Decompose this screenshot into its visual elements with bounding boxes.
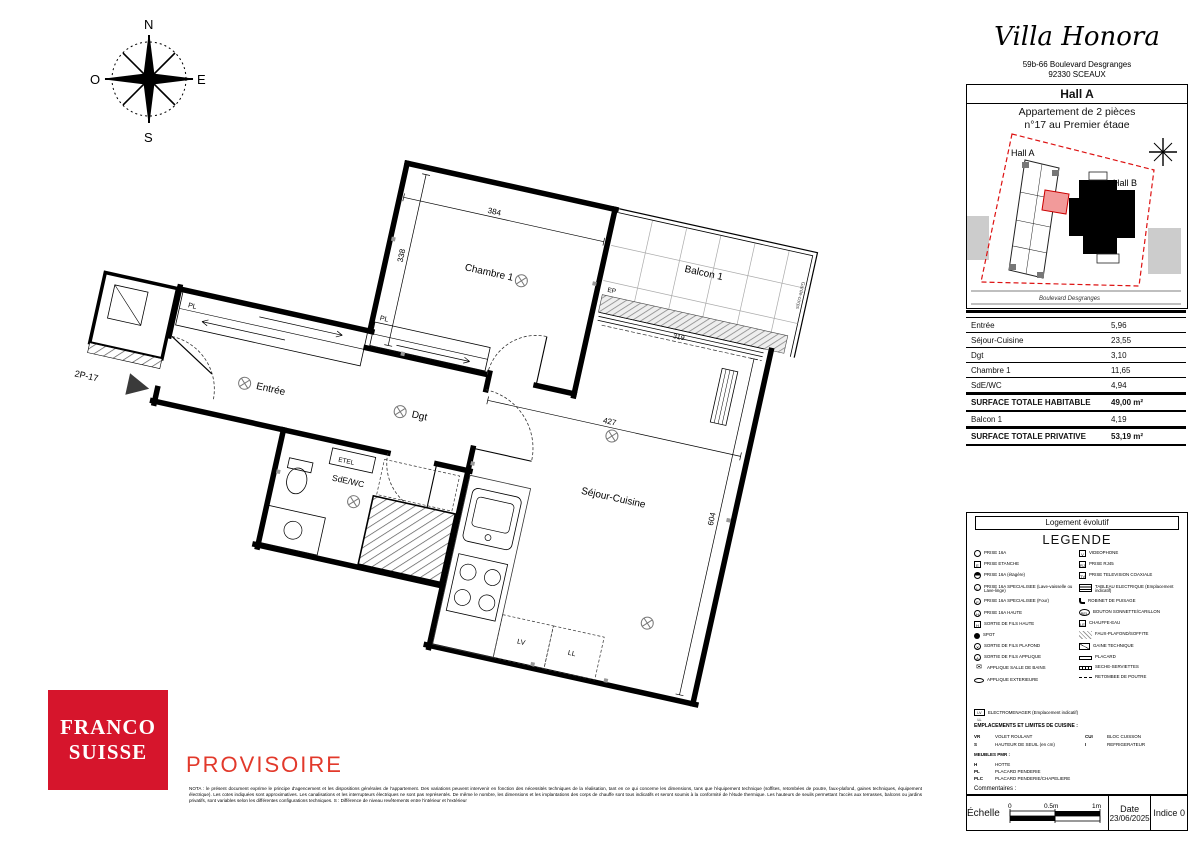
table-row: Séjour-Cuisine 23,55 — [966, 333, 1186, 348]
oven-socket-icon: F — [974, 598, 981, 605]
project-title: Villa Honora — [966, 22, 1188, 52]
hall-a-building — [1009, 160, 1059, 278]
electrical-panel-icon — [1079, 584, 1092, 592]
legend-item: HSORTIE DE FILS HAUTE — [974, 621, 1076, 628]
closet-label: PL — [379, 315, 389, 324]
hall-b-label: Hall B — [1113, 178, 1137, 188]
legend-item-label: GAINE TECHNIQUE — [1093, 643, 1134, 649]
abbr-label: HAUTEUR DE SEUIL (en cm) — [995, 742, 1055, 747]
bathroom-sconce-icon: ✉ — [974, 665, 984, 672]
etel-label: ETEL — [338, 456, 356, 466]
legend-item: FAUX-PLAFOND/SOFFITE — [1079, 631, 1183, 639]
compass-west-label: O — [90, 72, 100, 87]
legend-item: ✕SORTIE DE FILS PLAFOND — [974, 643, 1076, 650]
specialized-socket-icon: L — [974, 584, 981, 591]
legend-item: ✉APPLIQUE SALLE DE BAINS — [974, 665, 1076, 672]
legend-item-label: SORTIE DE FILS HAUTE — [984, 621, 1034, 627]
date-value: 23/06/2025 — [1110, 814, 1150, 823]
legend-item-label: APPLIQUE EXTERIEURE — [987, 677, 1038, 683]
appliances-label: ELECTROMENAGER (Emplacement indicatif) — [988, 710, 1078, 716]
room-area: 4,94 — [1111, 381, 1181, 390]
site-plan-box: Hall A Hall B Boulevard Desgranges — [966, 128, 1188, 309]
legend-item: PLACARD — [1079, 654, 1183, 660]
legend-item-label: RETOMBEE DE POUTRE — [1095, 674, 1146, 680]
videophone-icon: V — [1079, 550, 1086, 557]
legend-item-label: PRISE 16A — [984, 550, 1006, 556]
floor-plan-sheet: N S O E — [0, 0, 1191, 842]
appliances-legend: LV LL ELECTROMENAGER (Emplacement indica… — [974, 709, 1078, 716]
logo-line1: FRANCO — [60, 715, 156, 740]
abbr-code: S — [974, 742, 977, 747]
total-label: SURFACE TOTALE PRIVATIVE — [966, 432, 1111, 441]
spot-icon — [974, 633, 980, 639]
bedroom-label: Chambre 1 — [464, 262, 515, 284]
title-block-strip: Échelle 0 0.5m 1m Date 23/06/2025 Indice… — [966, 795, 1188, 831]
abbr-label: REFRIGERATEUR — [1107, 742, 1145, 747]
table-row: Chambre 1 11,65 — [966, 363, 1186, 378]
rj45-icon: RJ — [1079, 561, 1086, 568]
legend-item-label: CHAUFFE-EAU — [1089, 620, 1120, 626]
towel-dryer-icon — [1079, 666, 1092, 670]
project-address: 59b-66 Boulevard Desgranges 92330 SCEAUX — [966, 60, 1188, 80]
road-left — [967, 216, 989, 260]
date-cell: Date 23/06/2025 — [1108, 796, 1151, 830]
waterproof-socket-icon: E — [974, 561, 981, 568]
room-area: 5,96 — [1111, 321, 1181, 330]
nota-disclaimer: NOTA : le présent document exprime le pr… — [189, 786, 922, 804]
bathroom: ETEL SdE/WC — [261, 437, 464, 582]
legend-item: LPRISE 16A SPECIALISEE (Lave-vaisselle o… — [974, 584, 1076, 595]
entry-label: Entrée — [255, 381, 287, 398]
beam-drop-icon — [1079, 677, 1092, 678]
legend-item-label: PRISE RJ45 — [1089, 561, 1114, 567]
room-area: 4,19 — [1111, 415, 1181, 424]
site-compass-icon — [1149, 138, 1177, 166]
table-total-habitable: SURFACE TOTALE HABITABLE 49,00 m² — [966, 393, 1186, 412]
surface-table: Entrée 5,96 Séjour-Cuisine 23,55 Dgt 3,1… — [966, 310, 1186, 446]
legend-item-label: PRISE 16A SPECIALISEE (Lave-vaisselle ou… — [984, 584, 1076, 595]
room-name: Dgt — [966, 351, 1111, 360]
provisional-watermark: PROVISOIRE — [186, 752, 343, 778]
abbr-label: VOLET ROULANT — [995, 734, 1032, 739]
legend-item: ASORTIE DE FILS APPLIQUE — [974, 654, 1076, 661]
total-value: 53,19 m² — [1111, 432, 1181, 441]
table-row: Balcon 1 4,19 — [966, 412, 1186, 427]
table-row: SdE/WC 4,94 — [966, 378, 1186, 393]
balcony-threshold-hatch — [598, 295, 787, 354]
high-socket-icon: H — [974, 610, 981, 617]
room-area: 23,55 — [1111, 336, 1181, 345]
hall-label: Hall A — [967, 85, 1187, 104]
franco-suisse-logo: FRANCO SUISSE — [48, 690, 168, 790]
sconce-wire-outlet-icon: A — [974, 654, 981, 661]
total-value: 49,00 m² — [1111, 398, 1181, 407]
legend-item-label: PRISE 16A HAUTE — [984, 610, 1022, 616]
closet-label: PL — [187, 302, 197, 311]
water-tap-icon — [1079, 598, 1085, 604]
legend-item: ROBINET DE PUISAGE — [1079, 598, 1183, 604]
legend-item: BELBOUTON SONNETTE/CARILLON — [1079, 609, 1183, 616]
legend-item-label: SORTIE DE FILS APPLIQUE — [984, 654, 1041, 660]
legend-box: Logement évolutif LEGENDE PRISE 16A EPRI… — [966, 512, 1188, 795]
logo-line2: SUISSE — [69, 740, 147, 765]
abbr-code: VR — [974, 734, 980, 739]
legend-column-right: VVIDEOPHONE RJPRISE RJ45 TVPRISE TELEVIS… — [1079, 550, 1183, 684]
scale-cell: Échelle 0 0.5m 1m — [967, 796, 1108, 830]
scale-label: Échelle — [967, 808, 1000, 819]
legend-column-left: PRISE 16A EPRISE ETANCHE PRISE 16A (étag… — [974, 550, 1076, 687]
abbr-code: I — [1085, 742, 1086, 747]
legend-item: RJPRISE RJ45 — [1079, 561, 1183, 568]
interior-doors — [377, 308, 558, 532]
false-ceiling-icon — [1079, 631, 1092, 639]
legend-item-label: PRISE 16A SPECIALISEE (Four) — [984, 598, 1049, 604]
evolutive-housing-badge: Logement évolutif — [975, 516, 1179, 530]
street-label: Boulevard Desgranges — [1039, 296, 1100, 302]
legend-item-label: PRISE 16A (étagère) — [984, 572, 1025, 578]
pmr-code: PL — [974, 769, 980, 774]
highlighted-unit — [1042, 190, 1069, 214]
legend-item: GAINE TECHNIQUE — [1079, 643, 1183, 650]
legend-item: PRISE 16A — [974, 550, 1076, 557]
dishwasher-label: LV — [516, 638, 526, 647]
legend-item: RETOMBEE DE POUTRE — [1079, 674, 1183, 680]
unit-number-label: 2P-17 — [74, 368, 100, 383]
compass-north-label: N — [144, 17, 153, 32]
legend-item: SPOT — [974, 632, 1076, 639]
site-plan: Hall A Hall B Boulevard Desgranges — [967, 128, 1185, 306]
doorbell-icon: BEL — [1079, 609, 1090, 616]
legend-item: VVIDEOPHONE — [1079, 550, 1183, 557]
scale-tick-0: 0 — [1008, 803, 1012, 810]
balcony: Balcon 1 EP Garde-corps 319 — [594, 209, 818, 368]
exterior-sconce-icon — [974, 678, 984, 683]
room-name: Balcon 1 — [966, 415, 1111, 424]
legend-item: EPRISE ETANCHE — [974, 561, 1076, 568]
building-core — [88, 273, 178, 369]
washbasin — [282, 520, 303, 541]
room-area: 3,10 — [1111, 351, 1181, 360]
legend-item: LECHAUFFE-EAU — [1079, 620, 1183, 627]
entry-closet: PL — [176, 292, 368, 366]
room-name: Chambre 1 — [966, 366, 1111, 375]
table-row: Dgt 3,10 — [966, 348, 1186, 363]
legend-item-label: SPOT — [983, 632, 995, 638]
tv-socket-icon: TV — [1079, 572, 1086, 579]
ceiling-light-icons — [206, 220, 721, 630]
date-label: Date — [1120, 804, 1139, 814]
scale-tick-1: 1m — [1092, 803, 1101, 810]
table-row: Entrée 5,96 — [966, 318, 1186, 333]
scale-tick-05: 0.5m — [1044, 803, 1058, 810]
legend-item: APPLIQUE EXTERIEURE — [974, 677, 1076, 683]
legend-item-label: PLACARD — [1095, 654, 1116, 660]
high-wire-outlet-icon: H — [974, 621, 981, 628]
legend-item: HPRISE 16A HAUTE — [974, 610, 1076, 617]
technical-duct-icon — [1079, 643, 1090, 650]
hallway-label: Dgt — [411, 409, 429, 423]
total-label: SURFACE TOTALE HABITABLE — [966, 398, 1111, 407]
address-line1: 59b-66 Boulevard Desgranges — [966, 60, 1188, 70]
appliances-icon: LV LL — [974, 709, 985, 716]
comments-label: Commentaires : — [974, 787, 1016, 792]
light-point-icon — [974, 572, 981, 579]
balcony-label: Balcon 1 — [684, 264, 725, 283]
radiator — [710, 368, 738, 425]
socket-icons — [247, 223, 774, 701]
cooktop — [446, 554, 507, 621]
socket-icon — [974, 550, 981, 557]
legend-item: TVPRISE TELEVISION COAXIALE — [1079, 572, 1183, 579]
legend-item-label: APPLIQUE SALLE DE BAINS — [987, 665, 1046, 671]
compass-east-label: E — [197, 72, 206, 87]
water-heater-icon: LE — [1079, 620, 1086, 627]
legend-item: SECHE-SERVIETTES — [1079, 664, 1183, 670]
pmr-code: PLC — [974, 776, 983, 781]
closet-icon — [1079, 656, 1092, 660]
living-kitchen-label: Séjour-Cuisine — [580, 486, 647, 511]
kitchen-sink — [462, 487, 523, 551]
bedroom-height-dim: 338 — [396, 248, 408, 264]
pmr-label: PLACARD PENDERIE/CHAPELIERE — [995, 776, 1070, 781]
legend-item-label: BOUTON SONNETTE/CARILLON — [1093, 609, 1160, 615]
legend-item-label: TABLEAU ELECTRIQUE (Emplacement indicati… — [1095, 584, 1183, 595]
legend-title: LEGENDE — [967, 532, 1187, 547]
room-name: Séjour-Cuisine — [966, 336, 1111, 345]
entrance-arrow-icon — [125, 373, 151, 399]
legend-item-label: SORTIE DE FILS PLAFOND — [984, 643, 1040, 649]
washer-label: LL — [567, 650, 576, 659]
legend-item: FPRISE 16A SPECIALISEE (Four) — [974, 598, 1076, 605]
entrance-door — [160, 336, 224, 400]
abbr-label: BLOC CUISSON — [1107, 734, 1141, 739]
room-area: 11,65 — [1111, 366, 1181, 375]
room-name: SdE/WC — [966, 381, 1111, 390]
abbr-code: CUI — [1085, 734, 1093, 739]
kitchen-limits-title: EMPLACEMENTS ET LIMITES DE CUISINE : — [974, 724, 1078, 729]
pmr-code: H — [974, 762, 977, 767]
table-total-privative: SURFACE TOTALE PRIVATIVE 53,19 m² — [966, 427, 1186, 446]
address-line2: 92330 SCEAUX — [966, 70, 1188, 80]
toilet — [284, 466, 309, 496]
bathroom-label: SdE/WC — [331, 473, 365, 490]
pmr-title: MEUBLES PMR : — [974, 752, 1010, 757]
living-height-dim: 604 — [706, 511, 718, 527]
hall-a-label: Hall A — [1011, 148, 1035, 158]
legend-item: TABLEAU ELECTRIQUE (Emplacement indicati… — [1079, 584, 1183, 595]
legend-item-label: FAUX-PLAFOND/SOFFITE — [1095, 631, 1148, 637]
rainwater-pipe-label: EP — [607, 287, 617, 296]
road-right — [1148, 228, 1181, 274]
scale-bar: 0 0.5m 1m — [1004, 800, 1108, 826]
room-name: Entrée — [966, 321, 1111, 330]
legend-item: PRISE 16A (étagère) — [974, 572, 1076, 579]
legend-item-label: ROBINET DE PUISAGE — [1088, 598, 1136, 604]
legend-item-label: PRISE ETANCHE — [984, 561, 1019, 567]
legend-item-label: VIDEOPHONE — [1089, 550, 1118, 556]
revision-index: Indice 0 — [1153, 808, 1185, 818]
legend-item-label: SECHE-SERVIETTES — [1095, 664, 1139, 670]
pmr-label: PLACARD PENDERIE — [995, 769, 1041, 774]
ceiling-wire-outlet-icon: ✕ — [974, 643, 981, 650]
apartment-type: Appartement de 2 pièces — [967, 106, 1187, 119]
revision-cell: Indice 0 — [1150, 796, 1187, 830]
legend-item-label: PRISE TELEVISION COAXIALE — [1089, 572, 1152, 578]
pmr-label: HOTTE — [995, 762, 1010, 767]
